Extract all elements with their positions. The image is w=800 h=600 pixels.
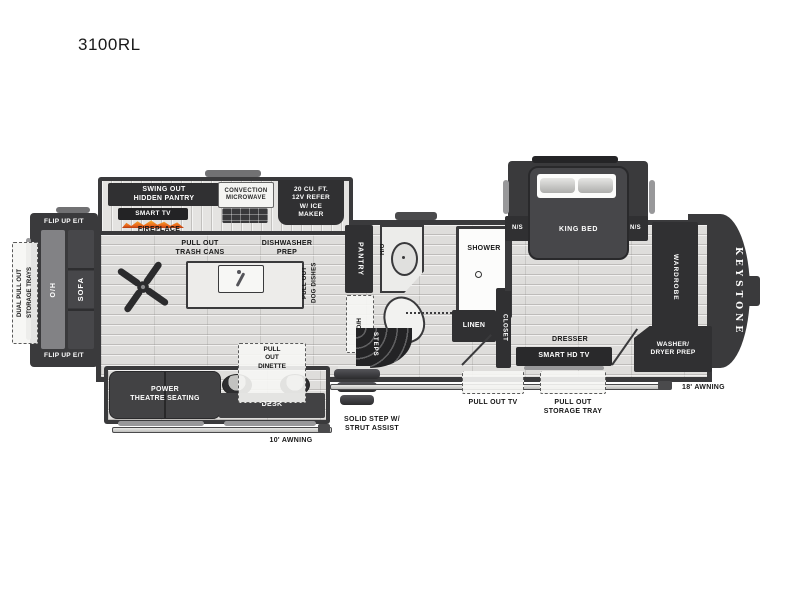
king-bed: KING BED (528, 166, 629, 260)
theatre-label: POWER THEATRE SEATING (130, 386, 200, 404)
dual-storage-trays-label: DUAL PULL OUT STORAGE TRAYS (15, 267, 35, 318)
island-sink (218, 265, 264, 293)
cooktop-icon (222, 208, 268, 223)
roof-vent (56, 207, 90, 213)
sofa-label: SOFA (77, 277, 85, 301)
roof-vent (205, 170, 261, 177)
window (224, 421, 316, 426)
bath-ho-label: H/O (380, 227, 392, 271)
faucet-icon (236, 272, 245, 286)
smart-tv: SMART TV (118, 208, 188, 220)
bath-sink-icon (391, 242, 418, 276)
pull-out-storage-tray-label: PULL OUT STORAGE TRAY (536, 399, 610, 417)
hidden-pantry-label: SWING OUT HIDDEN PANTRY (134, 186, 195, 204)
pull-out-storage-tray (540, 371, 606, 394)
pillow-icon (578, 178, 613, 193)
pull-out-tv-label: PULL OUT TV (458, 399, 528, 408)
awning-10 (112, 427, 332, 433)
dinette-label: PULL OUT DINETTE (258, 346, 286, 371)
convection-microwave: CONVECTION MICROWAVE (218, 182, 274, 208)
awning-10-label: 10' AWNING (256, 437, 326, 446)
trash-cans-label: PULL OUT TRASH CANS (150, 240, 250, 258)
brand-logo: KEYSTONE (724, 228, 742, 356)
steps-label: STEPS (372, 332, 378, 357)
solid-step-label: SOLID STEP W/ STRUT ASSIST (322, 416, 422, 434)
refrigerator-label: 20 CU. FT. 12V REFER W/ ICE MAKER (292, 186, 330, 219)
sofa: SOFA (68, 230, 94, 349)
dog-dishes-label: PULL OUT DOG DISHES (301, 250, 321, 316)
solid-step (334, 369, 380, 413)
page-title: 3100RL (78, 36, 141, 53)
pillow-icon (540, 178, 575, 193)
shower-handle-icon (475, 271, 482, 278)
closet-label: CLOSET (500, 314, 508, 341)
washer-dryer-label: WASHER/ DRYER PREP (650, 341, 695, 357)
bedroom-tv: SMART HD TV (516, 347, 612, 366)
refrigerator: 20 CU. FT. 12V REFER W/ ICE MAKER (278, 180, 344, 225)
smart-tv-label: SMART TV (135, 210, 171, 218)
flip-up-et-bottom: FLIP UP E/T (30, 352, 98, 360)
ns-right-label: N/S (630, 225, 641, 233)
bedroom-tv-label: SMART HD TV (538, 352, 589, 361)
theatre-seating: POWER THEATRE SEATING (109, 371, 221, 419)
linen-label: LINEN (463, 322, 486, 331)
faucet-base-icon (237, 270, 241, 274)
hidden-pantry: SWING OUT HIDDEN PANTRY (108, 183, 220, 206)
dresser-label: DRESSER (528, 336, 612, 345)
awning-18-label: 18' AWNING (682, 384, 744, 393)
awning-18-cap (658, 381, 672, 390)
flip-up-et-top: FLIP UP E/T (30, 218, 98, 226)
pantry-label: PANTRY (355, 242, 364, 276)
sofa-slideout: FLIP UP E/T O/H SOFA FLIP UP E/T (30, 213, 98, 367)
kitchen-island (186, 261, 304, 309)
hitch-pin (744, 276, 760, 306)
pull-out-tv-tray (462, 371, 524, 394)
dual-storage-trays: DUAL PULL OUT STORAGE TRAYS (12, 242, 38, 344)
wardrobe-label: WARDROBE (671, 254, 679, 301)
king-bed-label: KING BED (530, 226, 627, 235)
shower-label: SHOWER (459, 245, 509, 254)
bedroom-window (532, 156, 618, 163)
floorplan-canvas: 3100RL KEYSTONE SWING OUT HIDDEN PANTRY … (0, 0, 800, 600)
closet: CLOSET (496, 288, 511, 368)
washer-dryer-prep: WASHER/ DRYER PREP (634, 326, 712, 372)
pull-out-dinette: PULL OUT DINETTE (238, 343, 306, 403)
wall-vent (395, 212, 437, 220)
window (118, 421, 204, 426)
pantry: PANTRY (345, 225, 373, 293)
tv-stand (524, 366, 604, 370)
bedroom-window (649, 180, 655, 214)
nightstand-left: N/S (505, 216, 530, 241)
wardrobe: WARDROBE (652, 222, 698, 332)
pocket-door-track (406, 312, 452, 314)
microwave-label: CONVECTION MICROWAVE (224, 188, 267, 203)
bedroom-window (503, 180, 509, 214)
pillow-shelf (537, 174, 616, 198)
sofa-oh-label: O/H (50, 282, 57, 297)
ns-left-label: N/S (512, 225, 523, 233)
sofa-overhead-cabinet: O/H (41, 230, 65, 349)
awning-10-cap (318, 424, 330, 433)
fireplace-label: FIREPLACE (116, 226, 202, 235)
ceiling-fan-icon (112, 256, 174, 318)
